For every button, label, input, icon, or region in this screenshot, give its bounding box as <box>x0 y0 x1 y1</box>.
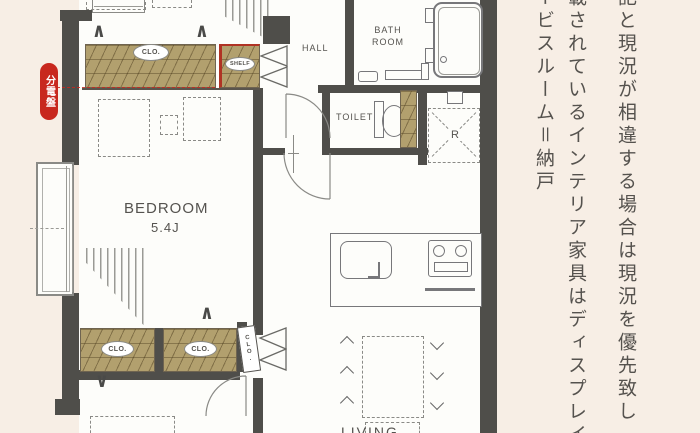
ps-box <box>447 91 463 104</box>
kitchen-sink <box>340 241 392 279</box>
door-arc <box>205 375 247 417</box>
bedroom-label: BEDROOM <box>124 200 209 217</box>
hall-label: HALL <box>302 43 329 53</box>
bath-door-tab <box>425 48 434 63</box>
closet-br-label: CLO. <box>191 346 209 353</box>
double-door-icon <box>258 327 288 371</box>
bifold-door-icon: ∨ <box>95 373 109 389</box>
level-marker <box>293 135 294 173</box>
wash-fixture <box>421 63 429 80</box>
bed-outline <box>98 99 150 157</box>
wall-under-toilet <box>322 148 428 155</box>
door-arc <box>285 93 331 139</box>
note-column-1: 記と現況が相違する場合は現況を優先致し <box>612 0 639 424</box>
level-marker <box>288 153 299 154</box>
wall-hall-bath <box>345 0 354 85</box>
toilet-shelf <box>400 90 417 148</box>
sink-faucet <box>368 262 380 278</box>
bathtub-drain <box>440 56 447 63</box>
bath-room-label: BATH ROOM <box>362 24 414 48</box>
counter-edge-line <box>425 288 475 291</box>
wall-toilet-r-divider <box>418 88 427 165</box>
bed-outline <box>183 97 221 141</box>
closet-bl-label: CLO. <box>108 346 126 353</box>
washbasin <box>358 71 378 82</box>
bed-pillow <box>160 115 178 135</box>
furniture-bottom-cut <box>90 416 175 433</box>
wall-bedroom-hall-low <box>253 378 263 433</box>
closet-top-label: CLO. <box>142 49 160 56</box>
closet-bottom-line <box>82 88 260 90</box>
shelf-label: SHELF <box>230 61 250 67</box>
living-label: LIVING <box>341 424 399 433</box>
bifold-door-icon: ∧ <box>200 305 214 321</box>
shelf-label-oval: SHELF <box>225 57 255 71</box>
bifold-door-icon: ∧ <box>195 23 209 39</box>
wall-hall-stub <box>253 148 285 155</box>
stove-grill <box>434 262 468 272</box>
closet-bl-label-oval: CLO. <box>101 341 134 357</box>
wall-top-mid <box>263 16 290 44</box>
red-dashed-leader <box>57 87 215 88</box>
toilet-label: TOILET <box>336 112 373 122</box>
furniture-top-cut <box>86 0 146 10</box>
window-glazing <box>72 166 73 292</box>
closet-br-label-oval: CLO. <box>184 341 217 357</box>
side-closet-label: CLO. <box>244 335 254 364</box>
window-glazing <box>66 166 67 292</box>
wall-bedroom-hall <box>253 88 263 335</box>
note-column-3: ービスルーム＝納戸 <box>530 0 557 194</box>
bathtub-inner <box>438 7 480 75</box>
note-column-2: 載されているインテリア家具はディスプレイ <box>562 0 589 433</box>
floor-plan-page: CLO. SHELF ∧ ∧ 分電盤 BEDROOM 5.4J CLO. CLO… <box>0 0 700 433</box>
door-arc <box>284 152 331 200</box>
distribution-board-badge: 分電盤 <box>40 63 58 120</box>
wall-left-lower <box>62 293 79 405</box>
wall-closet-divider <box>155 328 163 373</box>
double-door-icon <box>259 45 289 88</box>
wash-counter <box>385 70 423 80</box>
refrigerator-space: R <box>428 108 480 163</box>
stove-burner <box>455 245 467 257</box>
refrigerator-label: R <box>449 129 462 141</box>
window-center-tick <box>30 228 64 229</box>
stove-burner <box>433 245 445 257</box>
bedroom-area-label: 5.4J <box>151 220 180 235</box>
distribution-board-label: 分電盤 <box>42 75 57 108</box>
wall-bottom-left-corner <box>55 399 80 415</box>
dining-table <box>362 336 424 418</box>
bath-door-tab <box>425 8 434 23</box>
furniture-top-cut <box>152 0 192 8</box>
closet-top-label-oval: CLO. <box>133 44 169 61</box>
bifold-door-icon: ∧ <box>92 23 106 39</box>
